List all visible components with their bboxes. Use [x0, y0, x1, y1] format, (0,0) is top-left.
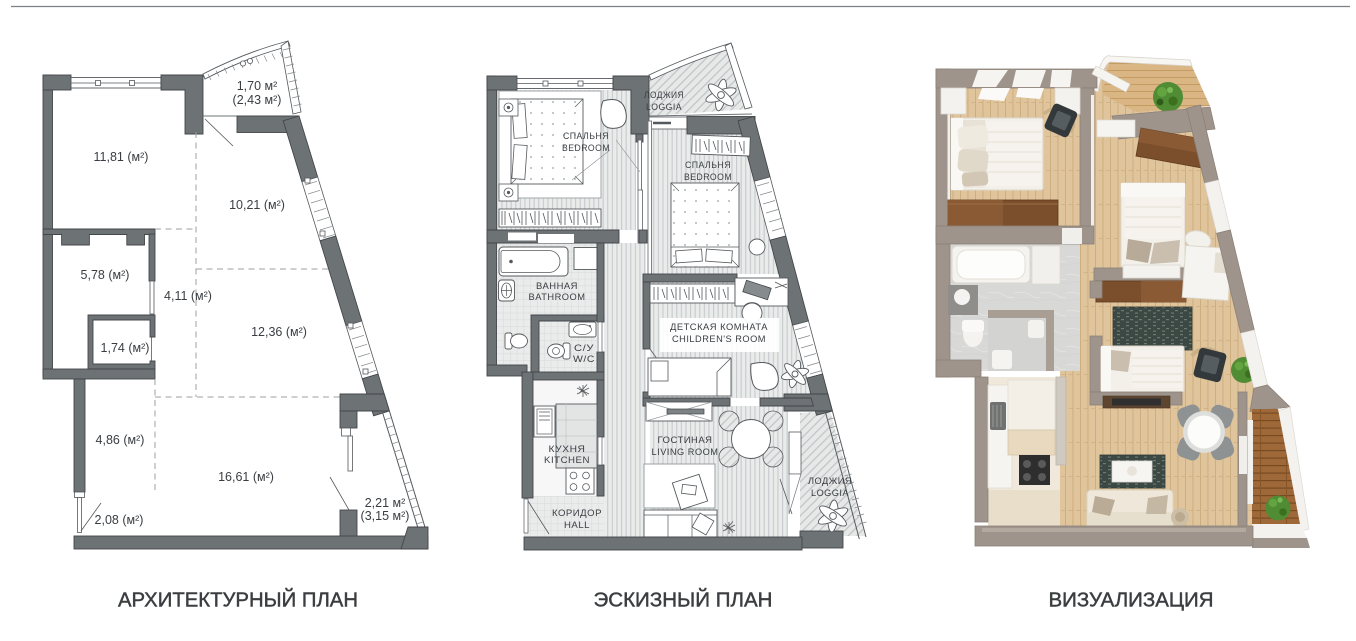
svg-text:HALL: HALL — [564, 520, 590, 530]
svg-text:16,61 (м²): 16,61 (м²) — [218, 470, 274, 484]
svg-text:ЭСКИЗНЫЙ ПЛАН: ЭСКИЗНЫЙ ПЛАН — [594, 588, 773, 612]
svg-text:ЛОДЖИЯ: ЛОДЖИЯ — [808, 476, 852, 486]
svg-text:ГОСТИНАЯ: ГОСТИНАЯ — [658, 435, 713, 445]
svg-text:BATHROOM: BATHROOM — [529, 292, 586, 302]
svg-text:11,81 (м²): 11,81 (м²) — [94, 150, 149, 164]
svg-text:С/У: С/У — [574, 343, 594, 353]
svg-text:W/C: W/C — [573, 354, 595, 364]
svg-text:1,70 м²: 1,70 м² — [237, 79, 278, 93]
svg-text:4,11 (м²): 4,11 (м²) — [164, 289, 212, 303]
svg-text:BEDROOM: BEDROOM — [684, 172, 732, 182]
svg-text:LOGGIA: LOGGIA — [646, 102, 682, 112]
svg-text:4,86 (м²): 4,86 (м²) — [96, 433, 145, 447]
svg-text:2,21 м²: 2,21 м² — [365, 496, 406, 510]
svg-text:ВАННАЯ: ВАННАЯ — [536, 281, 578, 291]
svg-text:12,36 (м²): 12,36 (м²) — [251, 325, 307, 339]
svg-text:АРХИТЕКТУРНЫЙ ПЛАН: АРХИТЕКТУРНЫЙ ПЛАН — [118, 588, 358, 612]
svg-text:LIVING ROOM: LIVING ROOM — [652, 447, 719, 457]
svg-text:КУХНЯ: КУХНЯ — [549, 444, 586, 454]
svg-text:(3,15 м²): (3,15 м²) — [361, 509, 410, 523]
svg-text:СПАЛЬНЯ: СПАЛЬНЯ — [563, 131, 609, 141]
svg-text:КОРИДОР: КОРИДОР — [552, 508, 602, 518]
svg-text:CHILDREN'S ROOM: CHILDREN'S ROOM — [672, 334, 766, 344]
svg-text:СПАЛЬНЯ: СПАЛЬНЯ — [685, 160, 731, 170]
svg-text:ВИЗУАЛИЗАЦИЯ: ВИЗУАЛИЗАЦИЯ — [1049, 589, 1214, 612]
svg-text:1,74 (м²): 1,74 (м²) — [101, 341, 150, 355]
svg-text:2,08 (м²): 2,08 (м²) — [95, 513, 144, 527]
svg-text:10,21 (м²): 10,21 (м²) — [229, 198, 285, 212]
svg-text:ЛОДЖИЯ: ЛОДЖИЯ — [644, 90, 684, 100]
svg-text:5,78 (м²): 5,78 (м²) — [81, 268, 130, 282]
svg-text:BEDROOM: BEDROOM — [562, 143, 610, 153]
svg-text:(2,43 м²): (2,43 м²) — [233, 93, 282, 107]
svg-text:KITCHEN: KITCHEN — [544, 455, 590, 465]
svg-text:ДЕТСКАЯ КОМНАТА: ДЕТСКАЯ КОМНАТА — [670, 322, 768, 332]
svg-text:LOGGIA: LOGGIA — [811, 488, 849, 498]
